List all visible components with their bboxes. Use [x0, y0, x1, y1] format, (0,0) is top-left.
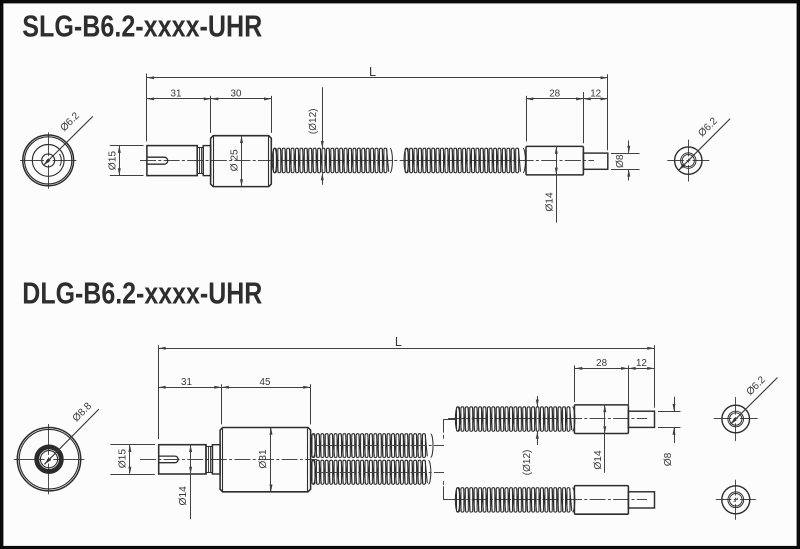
- svg-text:Ø14: Ø14: [178, 486, 189, 506]
- svg-text:28: 28: [549, 88, 560, 99]
- svg-text:DLG-B6.2-xxxx-UHR: DLG-B6.2-xxxx-UHR: [22, 276, 262, 311]
- svg-text:Ø8: Ø8: [663, 452, 674, 466]
- svg-text:28: 28: [596, 358, 607, 369]
- svg-text:Ø31: Ø31: [258, 449, 269, 469]
- svg-text:L: L: [369, 65, 376, 79]
- svg-text:(Ø12): (Ø12): [522, 450, 533, 476]
- svg-text:31: 31: [171, 88, 182, 99]
- svg-text:Ø14: Ø14: [545, 192, 556, 212]
- svg-text:Ø15: Ø15: [117, 449, 128, 469]
- svg-text:(Ø12): (Ø12): [308, 109, 319, 135]
- svg-text:Ø8: Ø8: [615, 154, 626, 168]
- svg-text:L: L: [395, 335, 402, 349]
- svg-text:30: 30: [231, 88, 242, 99]
- svg-text:31: 31: [181, 377, 192, 388]
- svg-text:Ø15: Ø15: [108, 151, 119, 171]
- svg-text:45: 45: [260, 377, 271, 388]
- svg-text:Ø14: Ø14: [593, 450, 604, 470]
- svg-text:12: 12: [636, 358, 647, 369]
- svg-text:SLG-B6.2-xxxx-UHR: SLG-B6.2-xxxx-UHR: [22, 9, 262, 44]
- svg-text:Ø 25: Ø 25: [229, 149, 240, 171]
- svg-text:12: 12: [590, 88, 601, 99]
